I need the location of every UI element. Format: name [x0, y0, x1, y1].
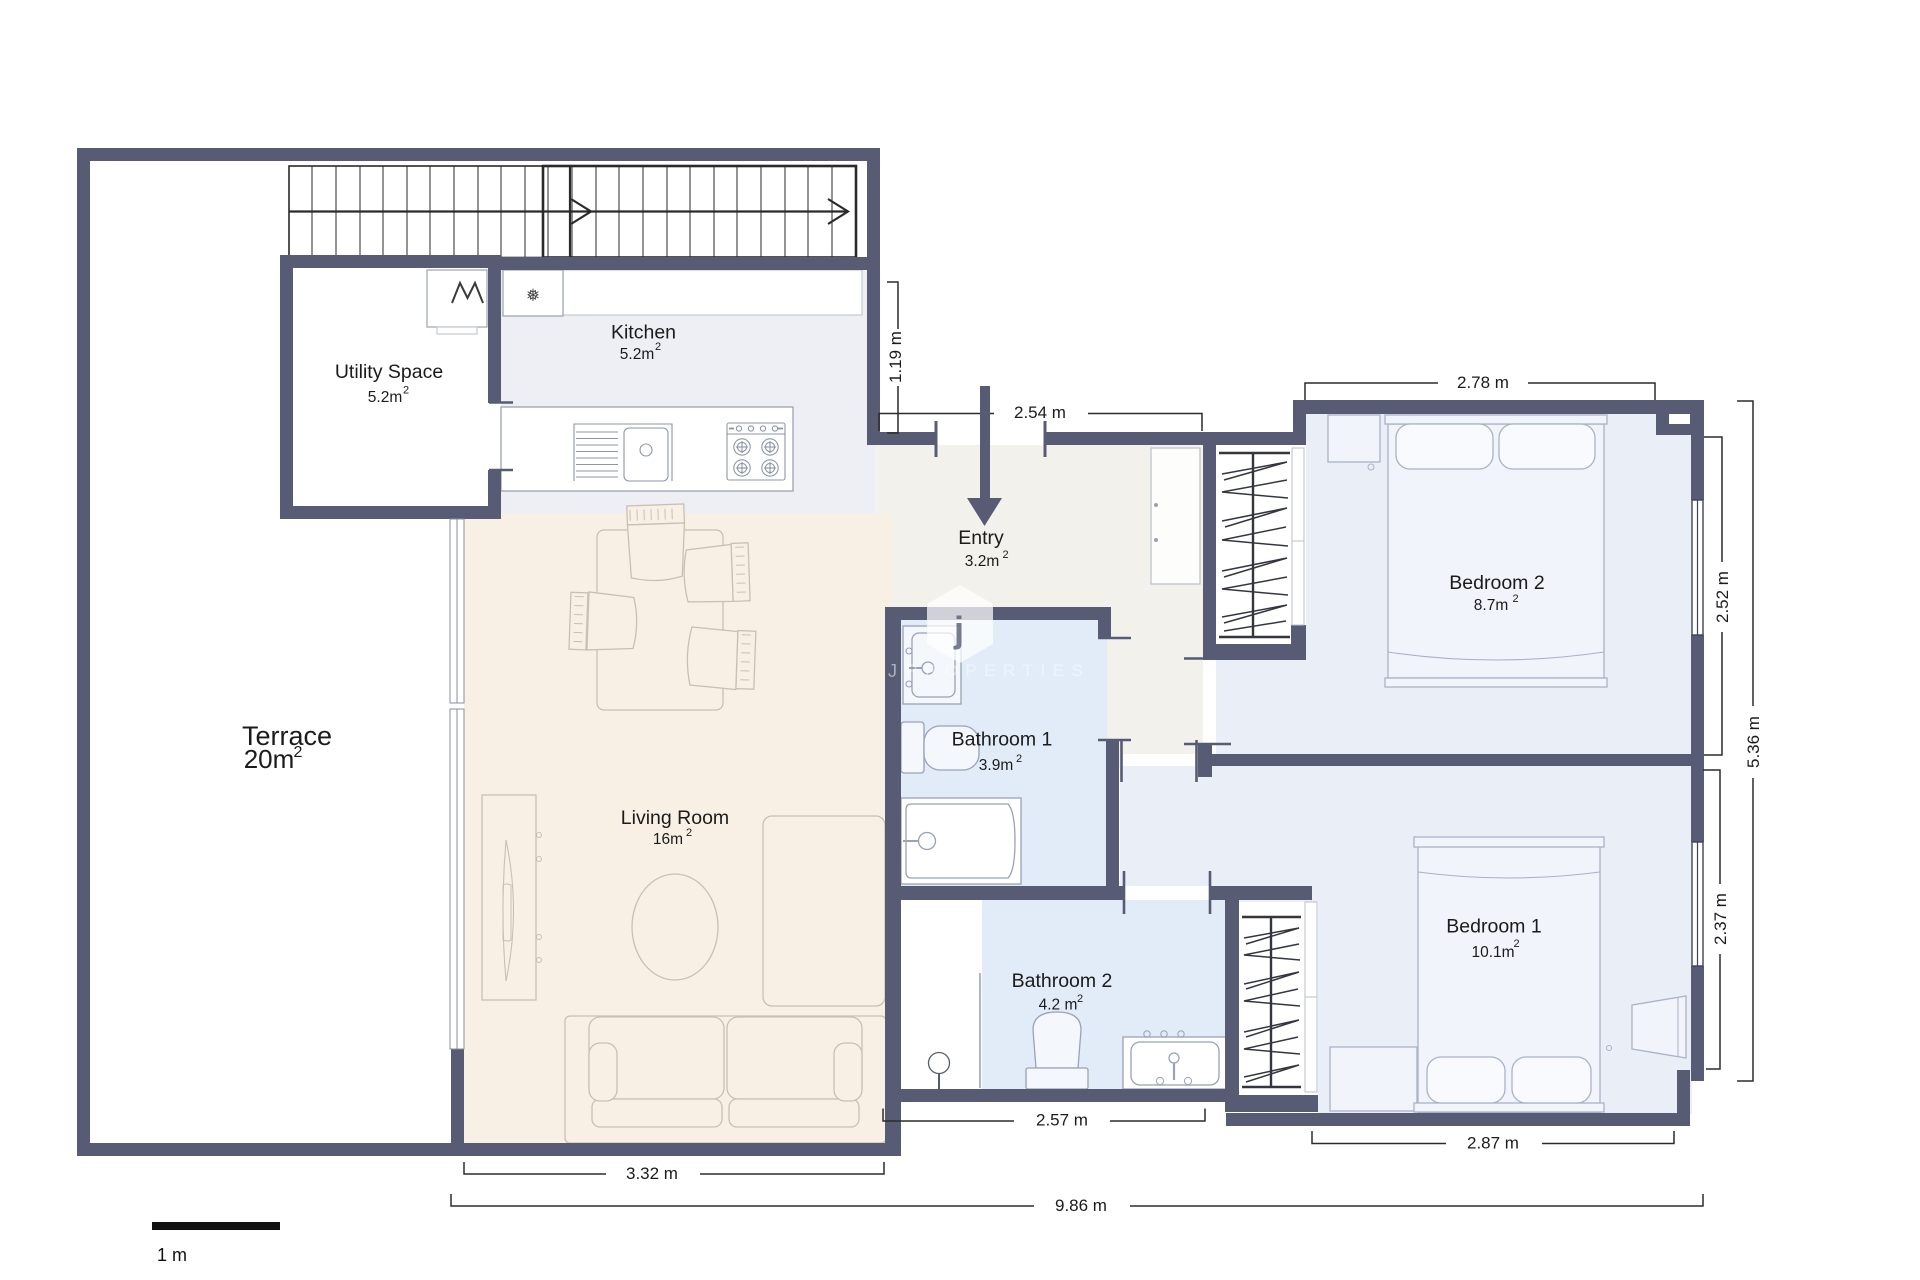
svg-text:2: 2 [1513, 938, 1519, 950]
svg-text:10.1m: 10.1m [1471, 944, 1514, 961]
svg-text:9.86 m: 9.86 m [1055, 1196, 1107, 1215]
svg-text:3.9m: 3.9m [979, 757, 1013, 774]
svg-text:Living Room: Living Room [621, 807, 729, 829]
svg-text:5.2m: 5.2m [368, 389, 402, 406]
svg-text:PROPERTIES: PROPERTIES [906, 661, 1090, 680]
svg-text:Utility Space: Utility Space [335, 361, 443, 383]
svg-text:1.19 m: 1.19 m [886, 331, 905, 383]
svg-text:2.87 m: 2.87 m [1467, 1134, 1519, 1153]
svg-text:16m: 16m [653, 831, 683, 848]
svg-text:2.52 m: 2.52 m [1713, 571, 1732, 623]
svg-text:2: 2 [1077, 993, 1083, 1005]
svg-text:5.2m: 5.2m [620, 346, 654, 363]
svg-text:2: 2 [1002, 549, 1008, 561]
svg-text:Bedroom 2: Bedroom 2 [1449, 572, 1544, 594]
svg-text:2.57 m: 2.57 m [1036, 1111, 1088, 1130]
svg-text:3.2m: 3.2m [965, 553, 999, 570]
svg-text:❅: ❅ [526, 286, 540, 305]
svg-text:2: 2 [1512, 593, 1518, 605]
svg-text:Entry: Entry [958, 527, 1004, 549]
svg-text:20m: 20m [244, 744, 295, 774]
svg-text:Bathroom 1: Bathroom 1 [952, 729, 1053, 751]
svg-text:2.78 m: 2.78 m [1457, 373, 1509, 392]
svg-text:2.37 m: 2.37 m [1711, 893, 1730, 945]
svg-text:j: j [953, 609, 964, 650]
svg-text:5.36 m: 5.36 m [1744, 716, 1763, 768]
svg-text:2: 2 [1016, 753, 1022, 765]
svg-text:4.2 m: 4.2 m [1039, 997, 1078, 1014]
svg-text:2: 2 [294, 744, 303, 761]
svg-text:8.7m: 8.7m [1474, 597, 1508, 614]
svg-text:2: 2 [655, 341, 661, 353]
svg-text:3.32 m: 3.32 m [626, 1164, 678, 1183]
svg-text:Bedroom 1: Bedroom 1 [1446, 916, 1541, 938]
svg-text:2.54 m: 2.54 m [1014, 403, 1066, 422]
svg-text:2: 2 [403, 385, 409, 397]
svg-text:J: J [888, 661, 897, 681]
svg-text:Bathroom 2: Bathroom 2 [1012, 970, 1113, 992]
svg-text:Kitchen: Kitchen [611, 322, 676, 344]
svg-text:2: 2 [686, 827, 692, 839]
svg-text:1 m: 1 m [157, 1245, 187, 1265]
